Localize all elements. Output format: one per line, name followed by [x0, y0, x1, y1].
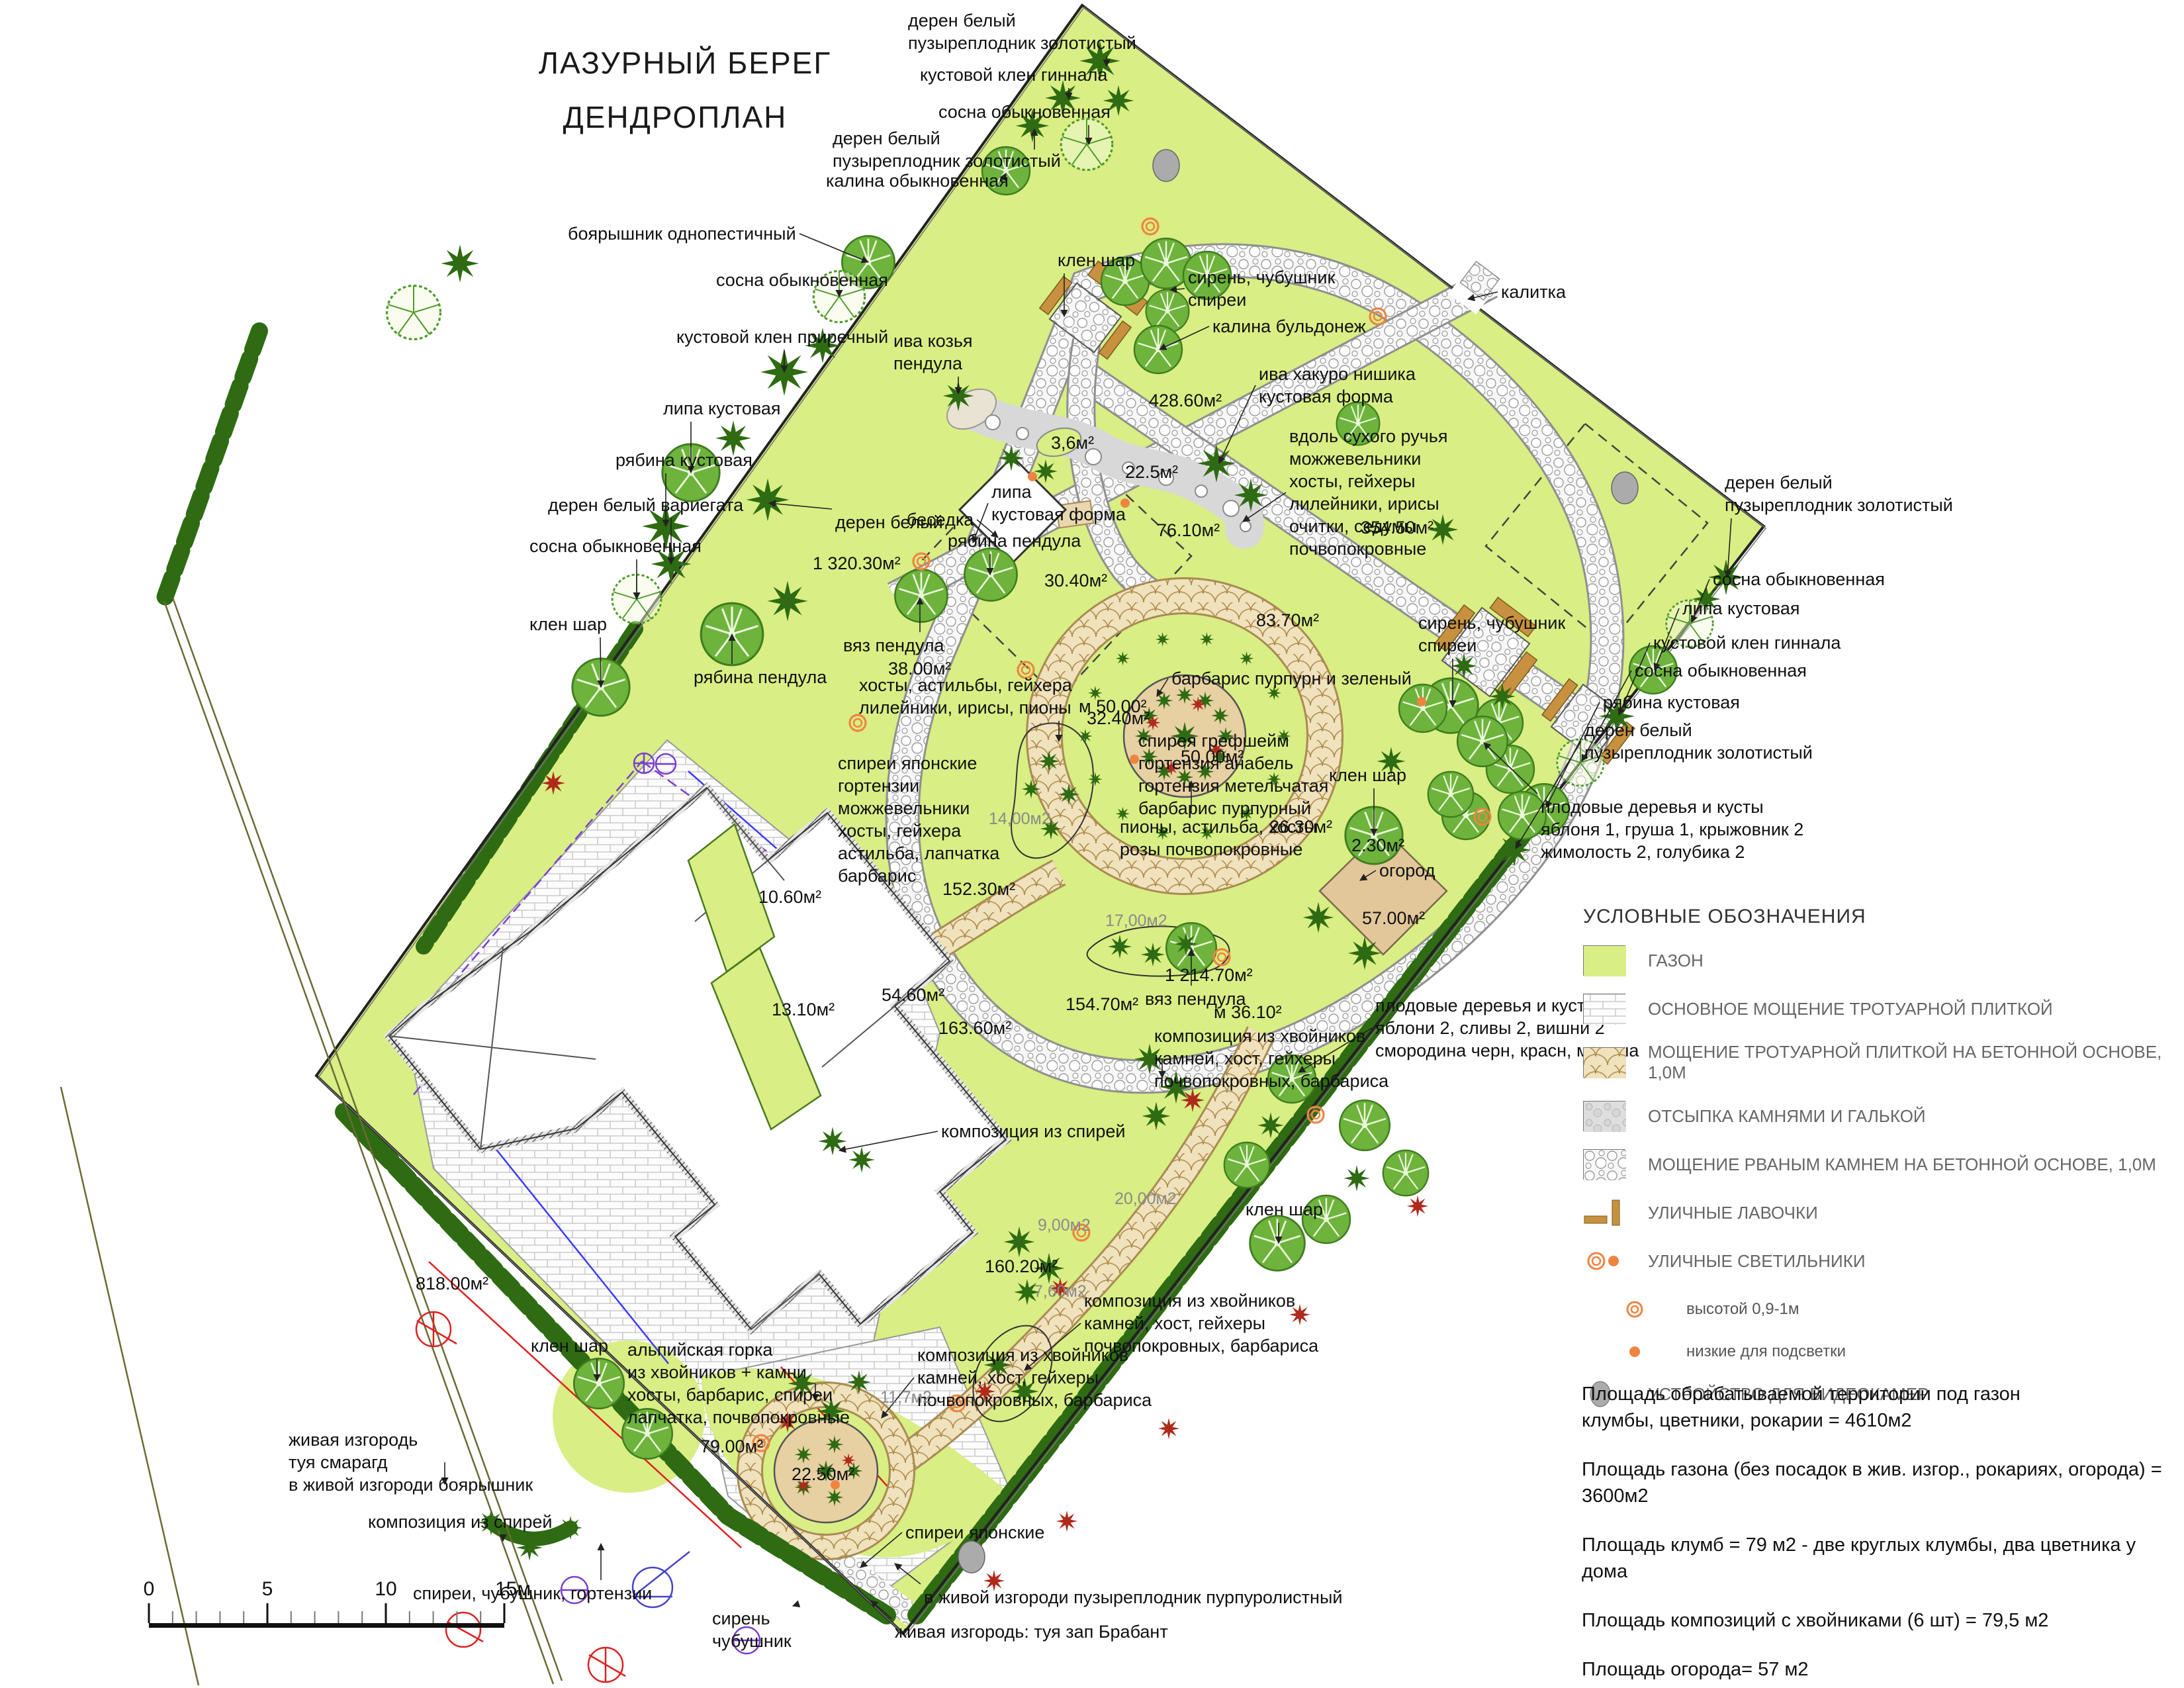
plant-label: клен шар — [1329, 764, 1406, 786]
legend-item-label: МОЩЕНИЕ ТРОТУАРНОЙ ПЛИТКОЙ НА БЕТОННОЙ О… — [1648, 1042, 2165, 1083]
area-label: 160.20м² — [985, 1255, 1058, 1278]
area-label: 2.30м² — [1351, 834, 1404, 857]
plant-label: дерен белыйпузыреплодник золотистый — [833, 127, 1061, 172]
area-label: 11,7м2 — [880, 1387, 932, 1409]
summary-line: Площадь обрабатываемой территории под га… — [1582, 1381, 2177, 1434]
plant-label: плодовые деревья и кустыяблоня 1, груша … — [1541, 796, 1803, 863]
area-label: 3,6м² — [1051, 432, 1094, 454]
low-lamp-icon — [1417, 697, 1426, 706]
scallop-icon — [1583, 1047, 1625, 1078]
area-label: 32.40м² — [1087, 707, 1150, 729]
bench-icon — [1583, 1197, 1625, 1228]
area-label: 1 214.70м² — [1165, 964, 1253, 986]
plant-label: клен шар — [529, 613, 607, 635]
area-label: 57.00м² — [1362, 907, 1425, 929]
plant-label: сирень, чубушникспиреи — [1188, 266, 1335, 311]
plant-label: альпийская горкаиз хвойников + камнихост… — [627, 1338, 850, 1429]
low-lamp-icon — [1028, 472, 1037, 481]
plant-label: хосты, астильбы, гейхералилейники, ирисы… — [859, 674, 1072, 719]
plant-label: сиреньчубушник — [712, 1607, 792, 1652]
legend-item-label: ОТСЫПКА КАМНЯМИ И ГАЛЬКОЙ — [1648, 1106, 1926, 1127]
area-label: 76.10м² — [1157, 519, 1220, 541]
plant-label: барбарис пурпурн и зеленый — [1171, 667, 1412, 690]
legend-item-label: УЛИЧНЫЕ ЛАВОЧКИ — [1648, 1203, 1818, 1223]
plant-label: рябина пендула — [948, 530, 1081, 552]
plant-label: рябина кустовая — [1603, 691, 1740, 714]
dendroplan-sheet: 051015м ЛАЗУРНЫЙ БЕРЕГ ДЕНДРОПЛАН дерен … — [0, 0, 2184, 1688]
lamp-icon — [1583, 1246, 1625, 1276]
plant-label: композиция из хвойниковкамней, хост, гей… — [917, 1344, 1152, 1411]
plant-label: кустовой клен гиннала — [1653, 632, 1841, 654]
plant-label: сосна обыкновенная — [716, 269, 888, 291]
area-label: 163.60м² — [938, 1017, 1011, 1039]
legend-title: УСЛОВНЫЕ ОБОЗНАЧЕНИЯ — [1583, 906, 2165, 928]
plant-label: ива козьяпендула — [893, 330, 973, 375]
plant-label: дерен белыйпузыреплодник золотистый — [1725, 471, 1953, 516]
legend-item: МОЩЕНИЕ ТРОТУАРНОЙ ПЛИТКОЙ НА БЕТОННОЙ О… — [1583, 1042, 2165, 1083]
plant-label: кустовой клен гиннала — [920, 64, 1107, 86]
plan-title: ЛАЗУРНЫЙ БЕРЕГ — [539, 45, 831, 81]
legend-item: ОТСЫПКА КАМНЯМИ И ГАЛЬКОЙ — [1583, 1101, 2165, 1131]
plant-label: клен шар — [531, 1335, 608, 1357]
plant-label: сосна обыкновенная — [1713, 568, 1885, 590]
plant-label: спиреи, чубушник, гортензии — [413, 1582, 652, 1605]
legend-item-label: УЛИЧНЫЕ СВЕТИЛЬНИКИ — [1648, 1251, 1866, 1272]
area-label: 10.60м² — [758, 886, 821, 908]
plant-label: рябина кустовая — [615, 449, 752, 471]
summary-line: Площадь газона (без посадок в жив. изгор… — [1582, 1456, 2177, 1509]
plant-label: беседка — [907, 508, 974, 531]
plan-subtitle: ДЕНДРОПЛАН — [563, 99, 788, 135]
plant-label: калитка — [1501, 281, 1566, 303]
plant-label: вяз пендула — [843, 634, 944, 657]
area-label: 152.30м² — [942, 878, 1015, 900]
plant-label: композиция из спирей — [941, 1120, 1125, 1143]
svg-text:10: 10 — [375, 1578, 396, 1600]
summary-line: Площадь клумб = 79 м2 - две круглых клум… — [1582, 1532, 2177, 1585]
plant-label: спиреи японские — [905, 1521, 1044, 1544]
plant-label: боярышник однопестичный — [568, 222, 796, 245]
plant-label: в живой изгороди пузыреплодник пурпуроли… — [924, 1586, 1342, 1609]
camera-icon — [1612, 472, 1638, 504]
lamp-low-icon — [1621, 1336, 1664, 1367]
area-label: 154.70м² — [1066, 993, 1138, 1015]
low-lamp-icon — [1130, 755, 1139, 764]
area-label: 20,00м2 — [1115, 1189, 1177, 1210]
plant-label: кустовой клен приречный — [676, 326, 888, 348]
plant-label: м 36.10² — [1214, 1001, 1282, 1023]
plant-label: огород — [1379, 859, 1435, 882]
legend-item-label: ОСНОВНОЕ МОЩЕНИЕ ТРОТУАРНОЙ ПЛИТКОЙ — [1648, 999, 2053, 1019]
legend-item: ОСНОВНОЕ МОЩЕНИЕ ТРОТУАРНОЙ ПЛИТКОЙ — [1583, 994, 2165, 1024]
plant-label: калина обыкновенная — [826, 169, 1009, 192]
area-label: 22.5м² — [1125, 461, 1178, 483]
area-label: 428.60м² — [1149, 389, 1222, 412]
area-label: 354.50м² — [1361, 516, 1433, 539]
area-label: 13.10м² — [772, 998, 835, 1021]
lawn-icon — [1583, 945, 1625, 976]
plant-label: сирень, чубушникспиреи — [1418, 612, 1565, 657]
area-label: 83.70м² — [1256, 609, 1319, 632]
area-label: 7,60м2 — [1034, 1282, 1087, 1303]
legend-item-label: ГАЗОН — [1648, 951, 1704, 971]
plant-label: липакустовая форма — [991, 481, 1126, 526]
lamp-high-icon — [1621, 1294, 1664, 1325]
plant-label: клен шар — [1058, 249, 1135, 271]
legend-item-label: высотой 0,9-1м — [1686, 1300, 1799, 1319]
plant-label: липа кустовая — [663, 397, 781, 420]
plant-label: спирея грефшеймгортензия анабельгортензи… — [1138, 729, 1328, 820]
plant-label: дерен белый вариегата — [548, 494, 743, 516]
legend-item: ГАЗОН — [1583, 945, 2165, 976]
legend-item: УЛИЧНЫЕ ЛАВОЧКИ — [1583, 1197, 2165, 1228]
area-label: 30.40м² — [1044, 569, 1107, 592]
brick-icon — [1583, 994, 1625, 1024]
legend-item-label: низкие для подсветки — [1686, 1342, 1846, 1361]
svg-text:0: 0 — [144, 1578, 155, 1600]
area-label: 818.00м² — [416, 1272, 488, 1295]
plant-label: живая изгородьтуя смарагдв живой изгород… — [289, 1429, 533, 1496]
summary-line: Площадь огорода= 57 м2 — [1582, 1656, 2177, 1683]
area-label: 79.00м² — [700, 1435, 763, 1458]
summary-line: Площадь композиций с хвойниками (6 шт) =… — [1582, 1607, 2177, 1634]
plant-label: дерен белыйпузыреплодник золотистый — [908, 9, 1136, 54]
legend-item-label: МОЩЕНИЕ РВАНЫМ КАМНЕМ НА БЕТОННОЙ ОСНОВЕ… — [1648, 1154, 2156, 1175]
pebble-icon — [1583, 1149, 1625, 1180]
area-label: 54.60м² — [882, 984, 944, 1006]
plant-label: сосна обыкновенная — [938, 101, 1111, 123]
area-label: 50.00м² — [1181, 745, 1244, 768]
legend-item: УЛИЧНЫЕ СВЕТИЛЬНИКИ — [1583, 1246, 2165, 1276]
plant-label: ива хакуро нишикакустовая форма — [1259, 363, 1416, 408]
plant-label: живая изгородь: туя зап Брабант — [895, 1620, 1168, 1643]
legend-item: низкие для подсветки — [1621, 1336, 2165, 1367]
plant-label: рябина пендула — [694, 666, 827, 688]
plant-label: дерен белыйпузыреплодник золотистый — [1584, 719, 1813, 764]
plant-label: калина бульдонеж — [1212, 315, 1366, 338]
plant-label: пионы, астильба, хостырозы почвопокровны… — [1120, 816, 1317, 861]
area-label: 22.50м² — [792, 1463, 854, 1485]
area-summary: Площадь обрабатываемой территории под га… — [1582, 1381, 2177, 1688]
area-label: 14,00м2 — [989, 809, 1051, 830]
legend-item: высотой 0,9-1м — [1621, 1294, 2165, 1325]
legend: УСЛОВНЫЕ ОБОЗНАЧЕНИЯ ГАЗОНОСНОВНОЕ МОЩЕН… — [1583, 906, 2165, 1427]
area-label: 9,00м2 — [1038, 1215, 1091, 1237]
svg-text:5: 5 — [262, 1578, 273, 1600]
legend-item: МОЩЕНИЕ РВАНЫМ КАМНЕМ НА БЕТОННОЙ ОСНОВЕ… — [1583, 1149, 2165, 1180]
plant-label: композиция из хвойниковкамней, хост, гей… — [1154, 1025, 1388, 1092]
plant-label: липа кустовая — [1682, 597, 1800, 620]
area-label: 38.00м² — [888, 657, 951, 680]
camera-icon — [958, 1541, 985, 1573]
plant-label: композиция из спирей — [368, 1511, 552, 1533]
plant-label: вдоль сухого ручьяможжевельникихосты, ге… — [1289, 425, 1448, 560]
plant-label: сосна обыкновенная — [529, 535, 702, 557]
plant-label: клен шар — [1246, 1198, 1323, 1221]
camera-icon — [1153, 150, 1179, 181]
area-label: 1 320.30м² — [813, 552, 901, 575]
plant-label: сосна обыкновенная — [1635, 659, 1807, 682]
area-label: 17,00м2 — [1105, 911, 1167, 932]
gravel-icon — [1583, 1101, 1625, 1131]
plant-label: спиреи японскиегортензииможжевельникихос… — [838, 752, 999, 887]
